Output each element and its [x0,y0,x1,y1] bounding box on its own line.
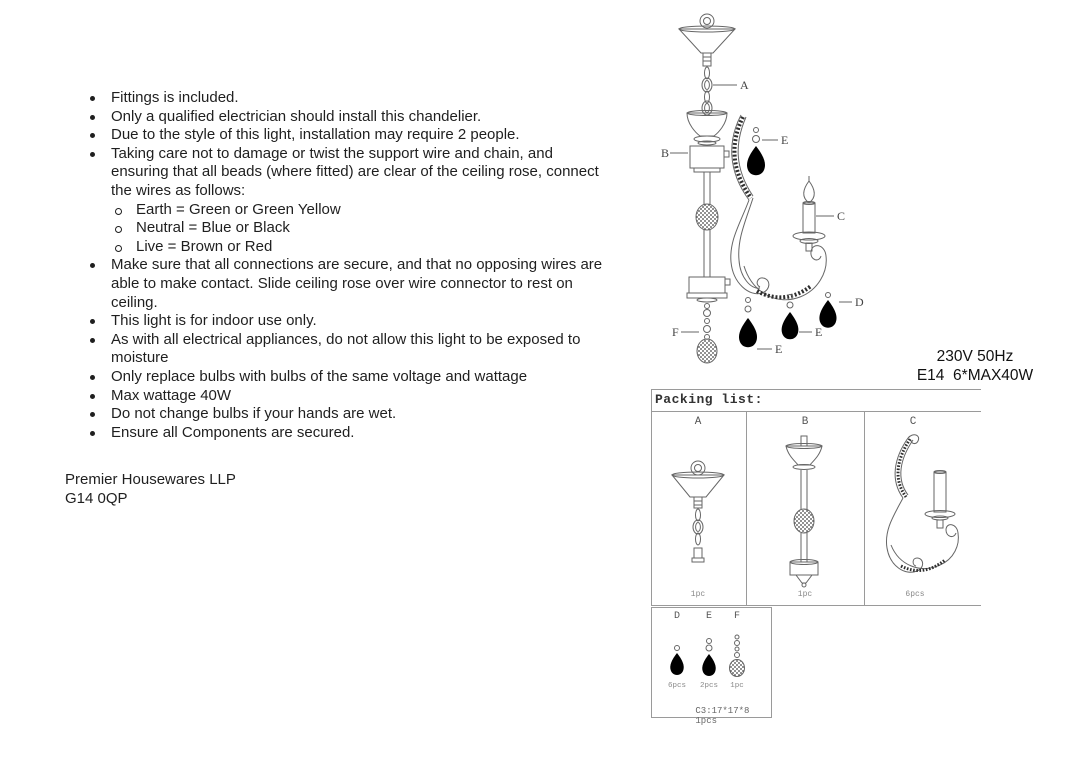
packing-qty-c: 6pcs [885,590,945,599]
small-part-d-qty: 6pcs [662,682,692,690]
instruction-list: Fittings is included. Only a qualified e… [88,89,653,442]
bullet-marker-icon [88,312,111,331]
part-label-e: E [815,325,822,339]
sub-bullet-item: Live = Brown or Red [113,238,653,257]
spec-block: 230V 50Hz E14 6*MAX40W [895,347,1055,385]
footer-company: Premier Housewares LLP [65,471,236,490]
bullet-marker-icon [88,405,111,424]
ceiling-cup-icon [679,29,735,53]
bullet-text: Due to the style of this light, installa… [111,126,520,145]
bullet-text: Only a qualified electrician should inst… [111,108,481,127]
bullet-marker-icon [88,126,111,145]
bullet-text: Taking care not to damage or twist the s… [111,145,599,201]
packing-col-c-label: C [893,416,933,428]
sub-bullet-item: Earth = Green or Green Yellow [113,201,653,220]
packing-list-title: Packing list: [655,392,763,407]
sub-bullet-item: Neutral = Blue or Black [113,219,653,238]
bullet-text: Do not change bulbs if your hands are we… [111,405,396,424]
spec-bulb: E14 6*MAX40W [895,366,1055,385]
bullet-item: This light is for indoor use only. [88,312,653,331]
small-part-e-qty: 2pcs [694,682,724,690]
part-label-a: A [740,78,749,92]
bullet-text: Only replace bulbs with bulbs of the sam… [111,368,527,387]
crystal-drop-icon [739,298,757,348]
packing-part-a-diagram [651,430,746,585]
bullet-item: Make sure that all connections are secur… [88,256,653,312]
bullet-marker-icon [88,331,111,368]
bullet-marker-icon [88,387,111,406]
footer: Premier Housewares LLP G14 0QP [65,471,236,508]
bullet-item: Fittings is included. [88,89,653,108]
packing-col-a-label: A [678,416,718,428]
part-label-e2: E [775,342,782,356]
sub-bullet-marker-icon [113,238,136,257]
lower-hub-icon [689,277,725,293]
box-size-label: C3:17*17*8 [695,706,749,716]
bullet-marker-icon [88,108,111,127]
packing-part-c-diagram [864,430,981,590]
beaded-arc-icon [734,117,751,198]
sub-bullet-text: Neutral = Blue or Black [136,219,290,238]
sub-bullet-text: Earth = Green or Green Yellow [136,201,341,220]
bullet-marker-icon [88,256,111,312]
sub-bullet-text: Live = Brown or Red [136,238,272,257]
crystal-ball-icon [696,204,718,230]
crystal-drop-icon [747,128,765,176]
bullet-text: Make sure that all connections are secur… [111,256,602,312]
footer-postcode: G14 0QP [65,490,236,509]
packing-col-b-label: B [785,416,825,428]
candle-icon [793,176,825,251]
sub-bullet-marker-icon [113,219,136,238]
part-label-b: B [661,146,669,160]
bullet-marker-icon [88,424,111,443]
small-part-f-qty: 1pc [722,682,752,690]
bullet-item: Ensure all Components are secured. [88,424,653,443]
crystal-drop-icon [819,293,836,328]
bullet-text: Max wattage 40W [111,387,231,406]
page: Fittings is included. Only a qualified e… [0,0,1082,765]
part-label-d: D [855,295,864,309]
sub-bullet-marker-icon [113,201,136,220]
bottom-finial-icon [697,304,717,364]
chain-icon [702,67,712,115]
bullet-marker-icon [88,89,111,108]
packing-part-b-diagram [746,430,864,590]
bullet-item: Max wattage 40W [88,387,653,406]
canopy-icon [687,113,727,136]
bullet-item: Due to the style of this light, installa… [88,126,653,145]
bullet-item: Taking care not to damage or twist the s… [88,145,653,201]
part-label-c: C [837,209,845,223]
chandelier-diagram: A B E C D E E F [648,8,910,378]
packing-qty-a: 1pc [668,590,728,599]
bullet-item: Only replace bulbs with bulbs of the sam… [88,368,653,387]
box-qty-label: 1pcs [695,716,717,726]
spec-voltage: 230V 50Hz [895,347,1055,366]
part-label-e-top: E [781,133,788,147]
bullet-item: Only a qualified electrician should inst… [88,108,653,127]
bullet-item: As with all electrical appliances, do no… [88,331,653,368]
bullet-marker-icon [88,368,111,387]
box-size-row: C3:17*17*8 1pcs [663,696,761,736]
bullet-marker-icon [88,145,111,201]
crystal-drop-icon [782,295,799,340]
part-label-f: F [672,325,679,339]
packing-qty-b: 1pc [775,590,835,599]
connector-box-icon [690,146,724,168]
bullet-item: Do not change bulbs if your hands are we… [88,405,653,424]
bullet-text: Ensure all Components are secured. [111,424,354,443]
bullet-text: This light is for indoor use only. [111,312,317,331]
bullet-text: As with all electrical appliances, do no… [111,331,580,368]
bullet-text: Fittings is included. [111,89,239,108]
